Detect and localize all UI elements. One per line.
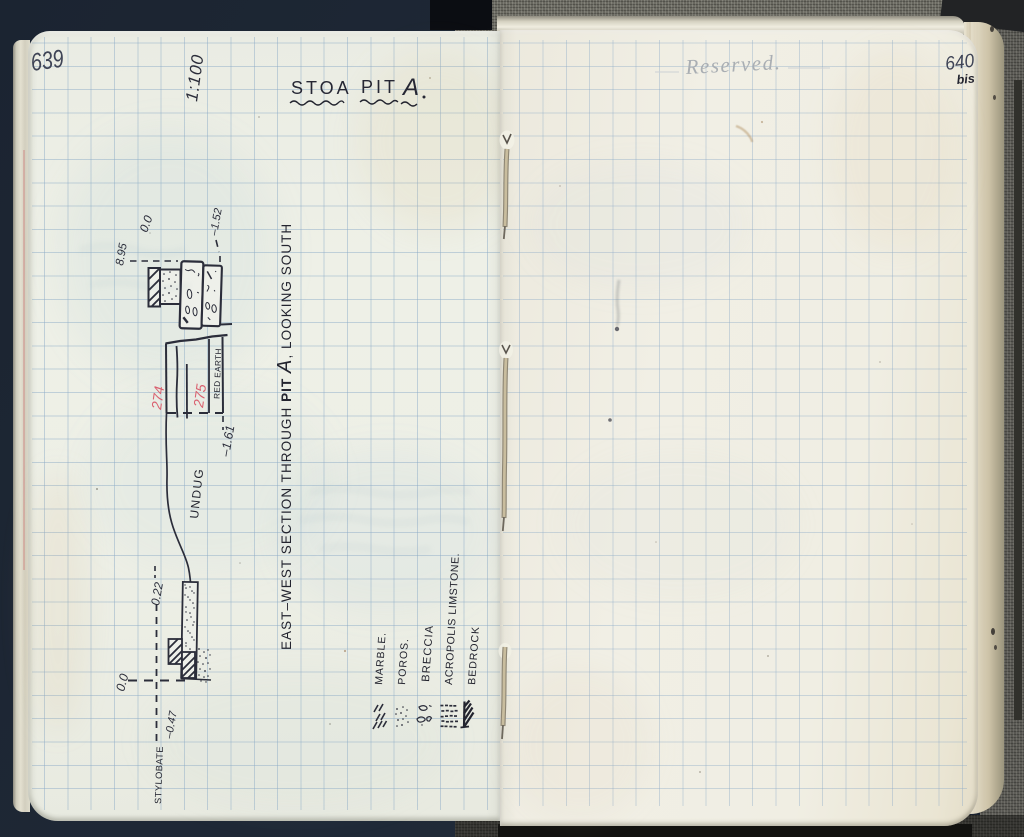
svg-text:POROS.: POROS. xyxy=(396,638,411,686)
svg-text:–1.61: –1.61 xyxy=(218,424,237,458)
svg-text:BEDROCK: BEDROCK xyxy=(466,626,482,686)
svg-text:STYLOBATE: STYLOBATE xyxy=(153,746,165,804)
svg-text:RED EARTH: RED EARTH xyxy=(213,348,224,399)
svg-text:–0.47: –0.47 xyxy=(163,709,180,740)
svg-text:0.0: 0.0 xyxy=(113,672,131,692)
svg-text:EAST–WEST SECTION THROUGH PIT: EAST–WEST SECTION THROUGH PIT A, LOOKING… xyxy=(274,223,296,650)
svg-text:0.0: 0.0 xyxy=(137,213,156,234)
svg-text:1:100: 1:100 xyxy=(182,53,207,103)
svg-text:PIT: PIT xyxy=(361,77,398,97)
svg-text:UNDUG: UNDUG xyxy=(187,467,206,519)
svg-text:275: 275 xyxy=(190,383,209,410)
svg-text:BRECCIA: BRECCIA xyxy=(420,624,436,682)
svg-text:ACROPOLIS LIMSTONE.: ACROPOLIS LIMSTONE. xyxy=(443,553,462,686)
svg-text:STOA: STOA xyxy=(291,78,352,98)
svg-text:A: A xyxy=(401,74,422,101)
svg-text:MARBLE.: MARBLE. xyxy=(373,631,389,685)
svg-text:Reserved.: Reserved. xyxy=(684,50,782,79)
svg-text:0.22: 0.22 xyxy=(148,581,166,607)
svg-text:639: 639 xyxy=(29,45,66,77)
svg-text:–1.52: –1.52 xyxy=(208,207,225,237)
svg-text:bis: bis xyxy=(956,71,975,87)
svg-text:274: 274 xyxy=(148,385,167,412)
